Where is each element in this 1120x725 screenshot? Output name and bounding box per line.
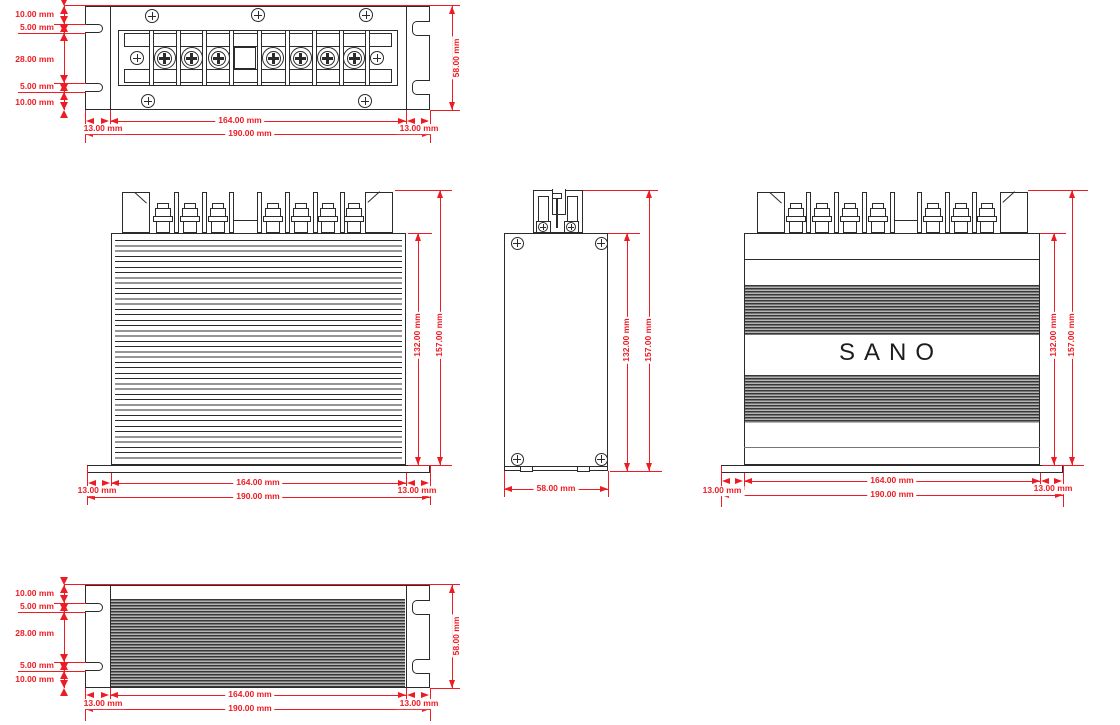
dimension-arrow: [60, 595, 68, 603]
dimension-label: 10.00 mm: [2, 10, 54, 20]
extension-line: [54, 662, 86, 663]
dimension-label: 13.00 mm: [1031, 484, 1076, 494]
dimension-arrow: [60, 671, 68, 679]
mounting-notch: [412, 600, 430, 615]
body-edge: [406, 585, 407, 688]
dimension-label: 10.00 mm: [2, 675, 54, 685]
dimension-arrow: [60, 680, 68, 688]
mounting-slot: [85, 662, 103, 671]
dimension-label: 5.00 mm: [2, 602, 54, 612]
dimension-arrow: [86, 692, 94, 698]
dimension-label: 190.00 mm: [233, 492, 282, 502]
dimension-label: 13.00 mm: [397, 124, 442, 134]
dimension-label: 164.00 mm: [215, 116, 264, 126]
mounting-slot: [85, 603, 103, 612]
dimension-arrow: [60, 577, 68, 585]
dimension-label: 13.00 mm: [81, 699, 126, 709]
dimension-arrow: [407, 692, 415, 698]
dimension-label: 58.00 mm: [452, 37, 462, 80]
dimension-label: 13.00 mm: [75, 486, 120, 496]
dimension-arrow: [60, 612, 68, 620]
dimension-label: 190.00 mm: [225, 704, 274, 714]
brand-logo: SANO: [839, 339, 943, 367]
dimension-label: 157.00 mm: [1067, 311, 1077, 358]
extension-line: [64, 584, 460, 585]
dimension-arrow: [101, 692, 109, 698]
dimension-label: 10.00 mm: [2, 98, 54, 108]
dimension-label: 164.00 mm: [867, 476, 916, 486]
dimension-label: 13.00 mm: [395, 486, 440, 496]
dimension-label: 5.00 mm: [2, 82, 54, 92]
extension-line: [18, 612, 86, 613]
dimension-label: 164.00 mm: [225, 690, 274, 700]
dimension-arrow: [60, 585, 68, 593]
dimension-arrow: [60, 654, 68, 662]
dimension-label: 132.00 mm: [413, 311, 423, 358]
dimension-label: 13.00 mm: [397, 699, 442, 709]
dimension-arrow: [421, 692, 429, 698]
dimension-label: 58.00 mm: [452, 615, 462, 658]
heatsink-fins: [111, 599, 405, 687]
dimension-arrow: [60, 688, 68, 696]
dimension-label: 10.00 mm: [2, 589, 54, 599]
dimension-label: 13.00 mm: [81, 124, 126, 134]
drawing-canvas: 10.00 mm5.00 mm28.00 mm5.00 mm10.00 mm58…: [0, 0, 1120, 725]
dimension-label: 190.00 mm: [867, 490, 916, 500]
dimension-label: 132.00 mm: [622, 316, 632, 363]
dimension-arrow: [60, 604, 68, 612]
dimension-label: 190.00 mm: [225, 129, 274, 139]
dimension-label: 157.00 mm: [644, 316, 654, 363]
dimension-label: 13.00 mm: [700, 486, 745, 496]
dimension-label: 157.00 mm: [435, 311, 445, 358]
extension-line: [54, 603, 86, 604]
dimension-label: 58.00 mm: [534, 484, 579, 494]
dimension-label: 164.00 mm: [233, 478, 282, 488]
bottom-view: 10.00 mm5.00 mm28.00 mm5.00 mm10.00 mm58…: [0, 0, 1120, 725]
dimension-label: 5.00 mm: [2, 23, 54, 33]
dimension-label: 28.00 mm: [2, 629, 54, 639]
dimension-label: 5.00 mm: [2, 661, 54, 671]
extension-line: [18, 671, 86, 672]
dimension-label: 28.00 mm: [2, 55, 54, 65]
mounting-notch: [412, 659, 430, 674]
dimension-label: 132.00 mm: [1049, 311, 1059, 358]
dimension-arrow: [60, 663, 68, 671]
extension-line: [430, 688, 460, 689]
